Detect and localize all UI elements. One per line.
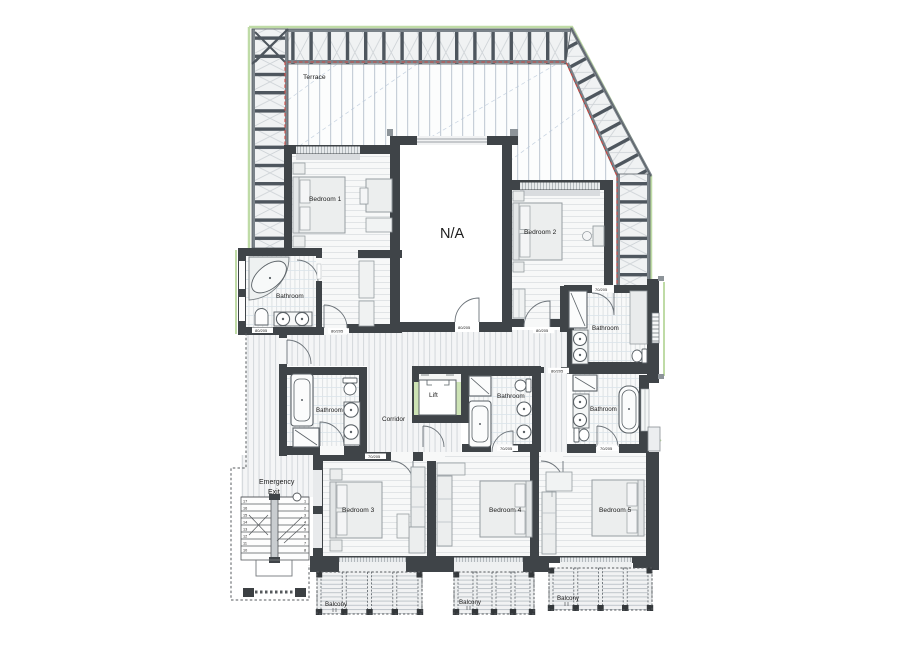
svg-text:2: 2 bbox=[304, 506, 306, 510]
svg-text:12: 12 bbox=[243, 534, 247, 538]
svg-text:70/205: 70/205 bbox=[595, 287, 608, 292]
svg-text:N/A: N/A bbox=[440, 226, 465, 242]
svg-text:Bathroom: Bathroom bbox=[276, 293, 304, 300]
svg-text:Emergency: Emergency bbox=[259, 479, 295, 486]
svg-text:11: 11 bbox=[243, 541, 247, 545]
svg-text:80/205: 80/205 bbox=[551, 368, 564, 373]
svg-text:Terrace: Terrace bbox=[303, 74, 326, 81]
svg-text:6: 6 bbox=[304, 534, 306, 538]
svg-text:Bedroom 3: Bedroom 3 bbox=[342, 507, 375, 514]
svg-text:14: 14 bbox=[243, 520, 247, 524]
svg-text:80/205: 80/205 bbox=[331, 329, 344, 334]
svg-text:8: 8 bbox=[304, 548, 306, 552]
svg-text:1: 1 bbox=[304, 499, 306, 503]
svg-text:13: 13 bbox=[243, 527, 247, 531]
svg-text:Bedroom 1: Bedroom 1 bbox=[309, 196, 342, 203]
svg-text:Bathroom: Bathroom bbox=[497, 393, 525, 400]
svg-text:70/205: 70/205 bbox=[500, 446, 513, 451]
svg-text:70/205: 70/205 bbox=[368, 454, 381, 459]
svg-text:Balcony: Balcony bbox=[557, 595, 580, 602]
svg-text:15: 15 bbox=[243, 513, 247, 517]
svg-text:3: 3 bbox=[304, 513, 306, 517]
svg-text:17: 17 bbox=[243, 499, 247, 503]
svg-text:80/205: 80/205 bbox=[536, 328, 549, 333]
svg-text:5: 5 bbox=[304, 527, 306, 531]
svg-text:4: 4 bbox=[304, 520, 306, 524]
svg-text:10: 10 bbox=[243, 548, 247, 552]
svg-text:Bedroom 4: Bedroom 4 bbox=[489, 507, 522, 514]
svg-text:Corridor: Corridor bbox=[382, 416, 406, 423]
svg-text:70/205: 70/205 bbox=[600, 446, 613, 451]
svg-text:Bathroom: Bathroom bbox=[316, 407, 343, 414]
svg-text:Bathroom: Bathroom bbox=[590, 406, 617, 413]
svg-text:Lift: Lift bbox=[429, 392, 438, 399]
svg-text:80/205: 80/205 bbox=[458, 325, 471, 330]
svg-text:16: 16 bbox=[243, 506, 247, 510]
svg-text:Balcony: Balcony bbox=[459, 599, 482, 606]
svg-text:Bedroom 2: Bedroom 2 bbox=[524, 229, 557, 236]
svg-text:Bathroom: Bathroom bbox=[592, 325, 619, 332]
svg-text:Balcony: Balcony bbox=[325, 601, 348, 608]
svg-text:Bedroom 5: Bedroom 5 bbox=[599, 507, 632, 514]
svg-text:7: 7 bbox=[304, 541, 306, 545]
svg-text:80/205: 80/205 bbox=[255, 328, 268, 333]
